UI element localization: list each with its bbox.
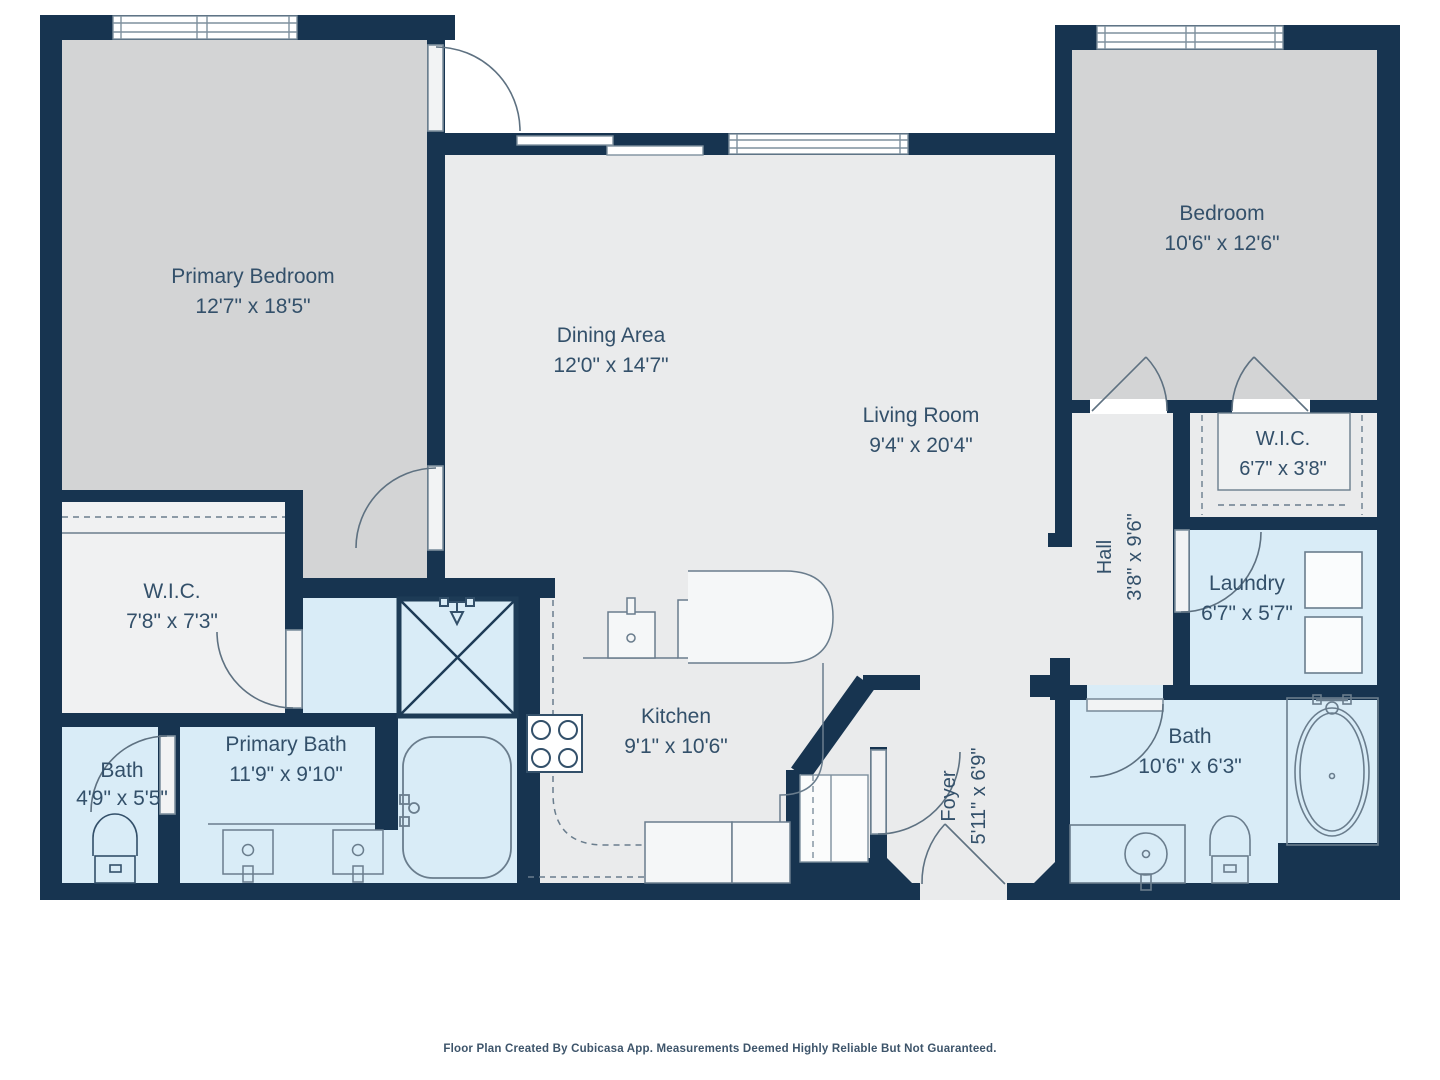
room-name: Bath xyxy=(1040,722,1340,752)
room-name: Bedroom xyxy=(1072,199,1372,229)
room-name: Primary Bath xyxy=(136,730,436,760)
room-dims: 10'6" x 12'6" xyxy=(1072,229,1372,259)
room-label-bath-left: Bath 4'9" x 5'5" xyxy=(42,757,202,813)
room-label-foyer: Foyer 5'11" x 6'9" xyxy=(934,721,994,871)
room-label-bedroom: Bedroom 10'6" x 12'6" xyxy=(1072,199,1372,259)
toilet xyxy=(93,814,137,883)
room-name: Bath xyxy=(42,757,202,785)
footer-disclaimer: Floor Plan Created By Cubicasa App. Meas… xyxy=(0,1043,1440,1055)
vanity-sinks xyxy=(208,824,383,882)
closet-shelf-lines xyxy=(62,517,285,533)
room-dims: 12'0" x 14'7" xyxy=(461,351,761,381)
shower xyxy=(399,598,516,716)
room-label-primary-bedroom: Primary Bedroom 12'7" x 18'5" xyxy=(103,262,403,322)
room-dims: 12'7" x 18'5" xyxy=(103,292,403,322)
room-label-bath-right: Bath 10'6" x 6'3" xyxy=(1040,722,1340,782)
room-label-wic-right: W.I.C. 6'7" x 3'8" xyxy=(1178,424,1388,484)
room-dims: 3'8" x 9'6" xyxy=(1120,477,1150,637)
room-name: Kitchen xyxy=(526,702,826,732)
base-cabinet xyxy=(645,822,732,883)
room-label-dining-area: Dining Area 12'0" x 14'7" xyxy=(461,321,761,381)
kitchen-sink xyxy=(608,612,655,658)
room-name: Living Room xyxy=(771,401,1071,431)
room-name: Hall xyxy=(1090,477,1120,637)
room-name: Laundry xyxy=(1147,569,1347,599)
room-dims: 6'7" x 5'7" xyxy=(1147,599,1347,629)
foyer-closet xyxy=(800,775,868,862)
room-label-kitchen: Kitchen 9'1" x 10'6" xyxy=(526,702,826,762)
room-dims: 10'6" x 6'3" xyxy=(1040,752,1340,782)
room-label-hall: Hall 3'8" x 9'6" xyxy=(1090,477,1150,637)
room-dims: 4'9" x 5'5" xyxy=(42,785,202,813)
room-dims: 9'1" x 10'6" xyxy=(526,732,826,762)
toilet-bowl xyxy=(1210,816,1250,856)
room-name: Foyer xyxy=(934,721,964,871)
room-name: W.I.C. xyxy=(1178,424,1388,454)
room-label-living-room: Living Room 9'4" x 20'4" xyxy=(771,401,1071,461)
room-label-wic-left: W.I.C. 7'8" x 7'3" xyxy=(72,577,272,637)
peninsula-counter xyxy=(688,571,833,663)
room-dims: 9'4" x 20'4" xyxy=(771,431,1071,461)
room-label-laundry: Laundry 6'7" x 5'7" xyxy=(1147,569,1347,629)
floorplan-drawing xyxy=(0,0,1440,1080)
room-name: W.I.C. xyxy=(72,577,272,607)
shower-head-icon xyxy=(440,598,474,624)
room-dims: 6'7" x 3'8" xyxy=(1178,454,1388,484)
toilet-tank xyxy=(1212,856,1248,883)
room-name: Dining Area xyxy=(461,321,761,351)
sliding-door xyxy=(517,136,703,155)
window xyxy=(1097,26,1283,49)
room-dims: 5'11" x 6'9" xyxy=(964,721,994,871)
room-name: Primary Bedroom xyxy=(103,262,403,292)
room-dims: 7'8" x 7'3" xyxy=(72,607,272,637)
window xyxy=(729,134,908,154)
floor-plan: Primary Bedroom 12'7" x 18'5" Dining Are… xyxy=(0,0,1440,1080)
base-cabinet xyxy=(732,822,790,883)
window xyxy=(113,16,297,39)
round-sink xyxy=(1125,833,1167,875)
